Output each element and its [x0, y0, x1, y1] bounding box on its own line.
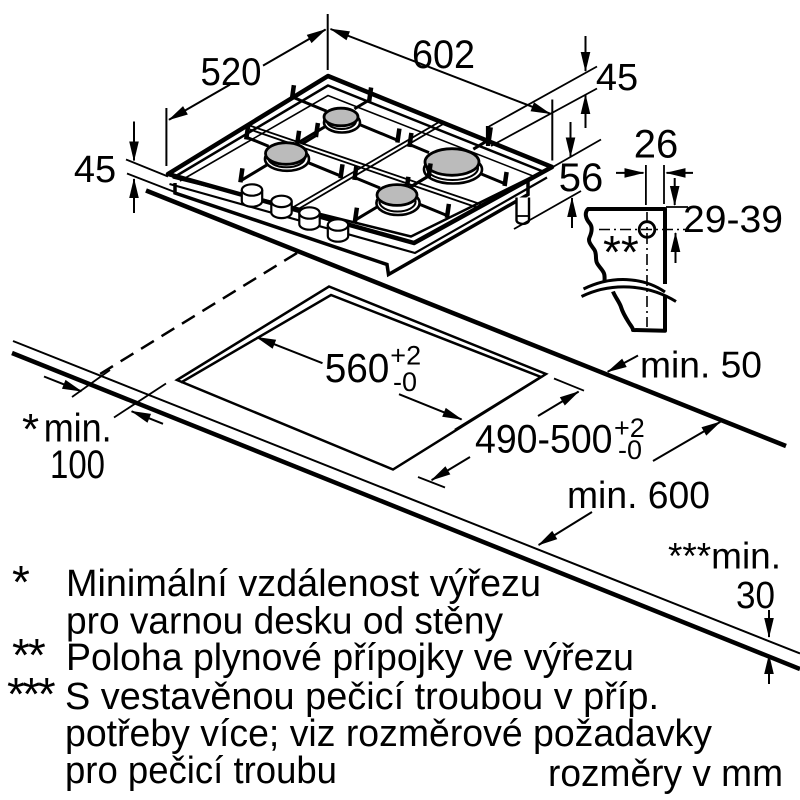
svg-text:***: ***	[7, 668, 56, 720]
svg-text:potřeby více; viz rozměrové po: potřeby více; viz rozměrové požadavky	[65, 713, 712, 755]
svg-text:520: 520	[201, 51, 262, 94]
svg-text:30: 30	[736, 575, 775, 617]
svg-text:S vestavěnou pečicí troubou v: S vestavěnou pečicí troubou v příp.	[65, 676, 659, 718]
svg-text:56: 56	[559, 156, 604, 200]
svg-text:min. 50: min. 50	[640, 345, 762, 386]
svg-text:***min.: ***min.	[668, 536, 781, 577]
svg-text:490-500: 490-500	[475, 418, 613, 462]
svg-text:-0: -0	[618, 435, 642, 465]
svg-text:26: 26	[634, 123, 679, 167]
svg-text:pro pečicí troubu: pro pečicí troubu	[65, 750, 337, 792]
svg-text:602: 602	[412, 33, 475, 77]
svg-text:+2: +2	[390, 341, 421, 371]
svg-text:*: *	[12, 556, 30, 608]
svg-text:Poloha plynové přípojky ve výř: Poloha plynové přípojky ve výřezu	[66, 637, 634, 679]
svg-text:45: 45	[74, 149, 116, 191]
svg-text:**: **	[603, 226, 639, 278]
svg-text:560: 560	[325, 345, 390, 391]
svg-text:29-39: 29-39	[683, 199, 783, 241]
svg-text:-0: -0	[393, 367, 417, 397]
svg-text:*: *	[22, 405, 39, 454]
svg-text:45: 45	[596, 57, 638, 99]
svg-text:rozměry v mm: rozměry v mm	[548, 753, 783, 795]
svg-text:Minimální vzdálenost výřezu: Minimální vzdálenost výřezu	[66, 563, 541, 605]
svg-text:min. 600: min. 600	[567, 475, 710, 517]
svg-text:100: 100	[50, 443, 105, 487]
